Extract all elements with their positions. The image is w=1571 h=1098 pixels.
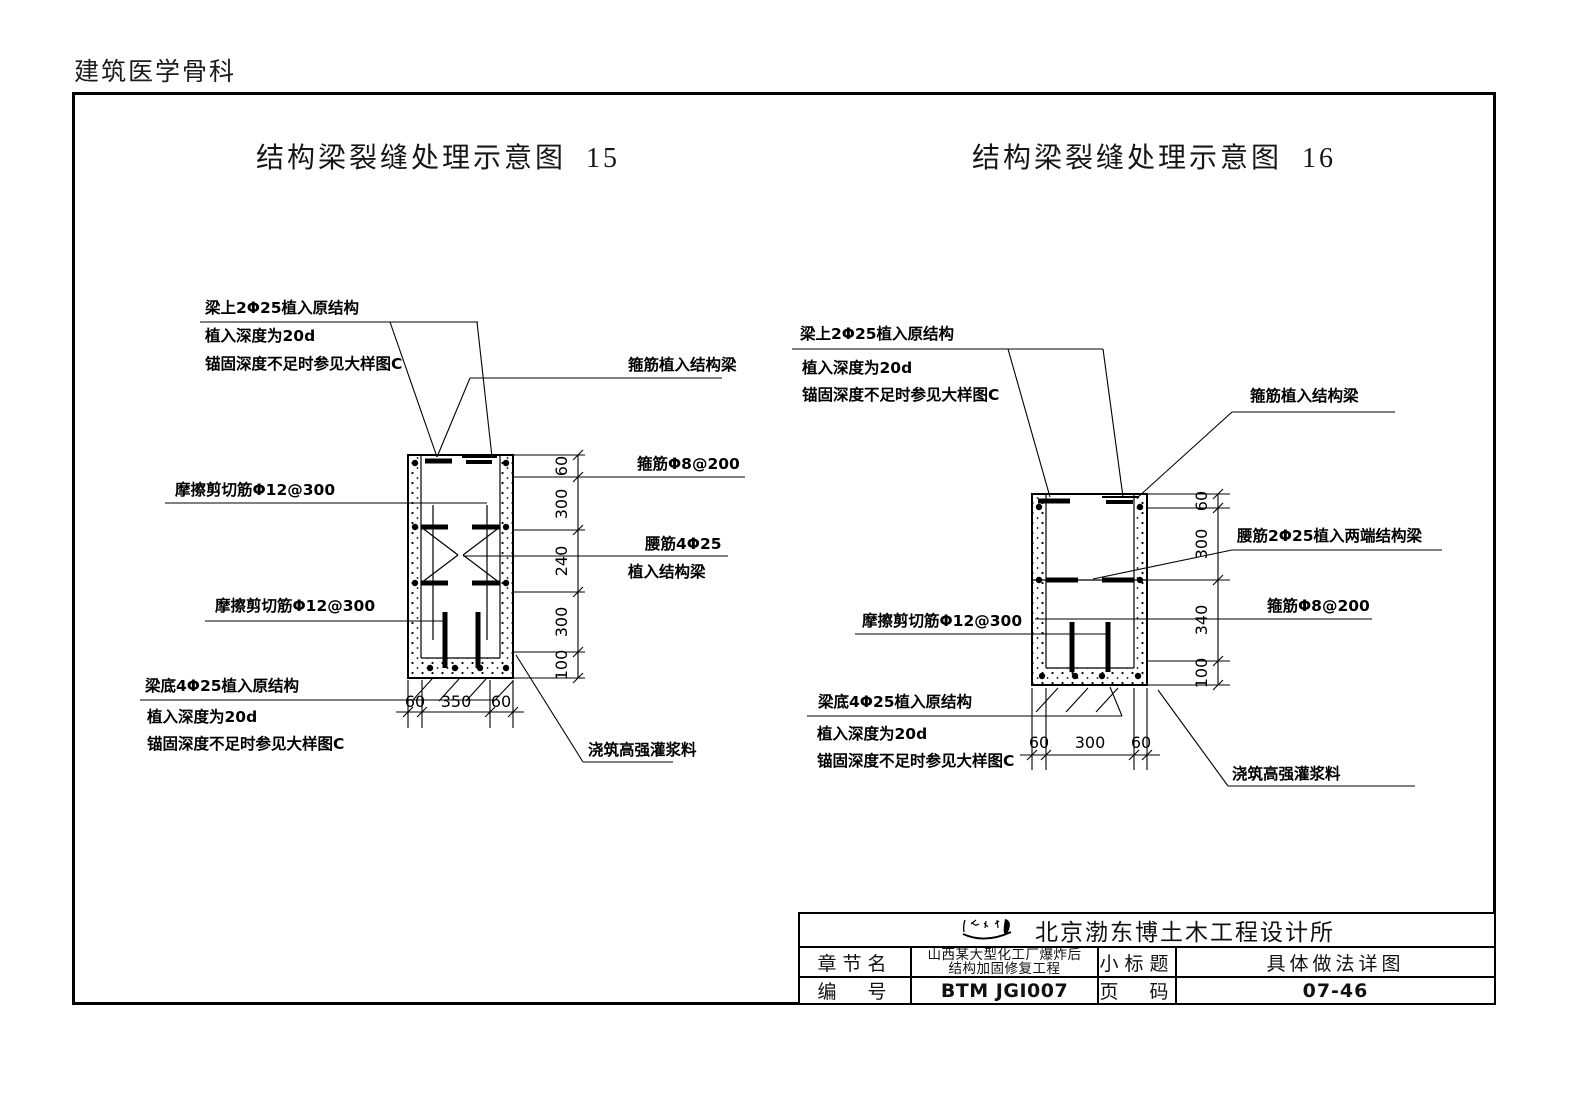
label-friction-16: 摩擦剪切筋Φ12@300 <box>862 611 1022 630</box>
beam-section-15 <box>408 455 513 678</box>
label-bottom-bar-15: 梁底4Φ25植入原结构 <box>144 676 299 695</box>
label-bottom-anchor-15: 锚固深度不足时参见大样图C <box>147 734 344 753</box>
label-bottom-anchor-16: 锚固深度不足时参见大样图C <box>817 751 1014 770</box>
project-name-line1: 山西某大型化工厂爆炸后 <box>928 948 1082 962</box>
label-top-anchor-16: 锚固深度不足时参见大样图C <box>802 385 999 404</box>
beam-section-16 <box>1032 494 1147 685</box>
label-friction-top-15: 摩擦剪切筋Φ12@300 <box>175 480 335 499</box>
page-label: 页 码 <box>1097 976 1175 1003</box>
label-top-bar-15: 梁上2Φ25植入原结构 <box>204 298 359 317</box>
title-block: 北京渤东博土木工程设计所 章节名 山西某大型化工厂爆炸后 结构加固修复工程 小标… <box>798 912 1496 1005</box>
label-grout-15: 浇筑高强灌浆料 <box>588 740 697 759</box>
dim-16-bottom-60a: 60 <box>1029 733 1049 752</box>
label-bottom-depth-15: 植入深度为20d <box>146 707 257 726</box>
dim-16-right-60: 60 <box>1192 491 1211 511</box>
label-top-depth-16: 植入深度为20d <box>801 358 912 377</box>
labels-16: 梁上2Φ25植入原结构 植入深度为20d 锚固深度不足时参见大样图C 箍筋植入结… <box>799 324 1423 783</box>
dim-16-right-340: 340 <box>1192 605 1211 636</box>
dim-16-right-100: 100 <box>1192 658 1211 689</box>
page-value: 07-46 <box>1175 976 1494 1003</box>
label-bottom-depth-16: 植入深度为20d <box>816 724 927 743</box>
leaders-16 <box>792 349 1442 786</box>
label-top-bar-16: 梁上2Φ25植入原结构 <box>799 324 954 343</box>
label-waist-bar-15: 腰筋4Φ25 <box>644 534 722 553</box>
label-waist-bar-16: 腰筋2Φ25植入两端结构梁 <box>1236 526 1423 545</box>
title-block-company-row: 北京渤东博土木工程设计所 <box>800 914 1494 946</box>
dim-15-right-300b: 300 <box>552 607 571 638</box>
chapter-label: 章节名 <box>800 946 910 976</box>
rebar-dots-16 <box>1036 504 1143 679</box>
beam-outline-15 <box>408 455 513 678</box>
dim-15-right-60a: 60 <box>552 456 571 476</box>
label-top-anchor-15: 锚固深度不足时参见大样图C <box>205 354 402 373</box>
company-name: 北京渤东博土木工程设计所 <box>1035 913 1335 947</box>
beam-outline-16 <box>1032 494 1147 685</box>
label-stirrup-implant-16: 箍筋植入结构梁 <box>1250 386 1359 405</box>
label-stirrup-implant-15: 箍筋植入结构梁 <box>628 355 737 374</box>
dim-15-bottom-350: 350 <box>441 692 472 711</box>
label-top-depth-15: 植入深度为20d <box>204 326 315 345</box>
wall-left-15 <box>408 455 421 658</box>
dim-15-right-100: 100 <box>552 650 571 681</box>
dim-15-bottom-60a: 60 <box>405 692 425 711</box>
subtitle-value: 具体做法详图 <box>1175 946 1494 976</box>
dim-16-bottom-300: 300 <box>1075 733 1106 752</box>
number-value: BTM JGI007 <box>910 976 1097 1003</box>
dim-15-right-240: 240 <box>552 546 571 577</box>
slab-bottom-16 <box>1032 668 1147 685</box>
title-block-grid: 章节名 山西某大型化工厂爆炸后 结构加固修复工程 小标题 具体做法详图 编 号 … <box>800 946 1494 1003</box>
label-stirrup-spec-15: 箍筋Φ8@200 <box>637 454 740 473</box>
subtitle-label: 小标题 <box>1097 946 1175 976</box>
company-logo <box>959 916 1021 944</box>
label-bottom-bar-16: 梁底4Φ25植入原结构 <box>817 692 972 711</box>
rebar-dots-15 <box>412 460 509 671</box>
dim-16-bottom-60b: 60 <box>1131 733 1151 752</box>
label-waist-bar2-15: 植入结构梁 <box>627 562 706 581</box>
number-label: 编 号 <box>800 976 910 1003</box>
dim-15-bottom-60b: 60 <box>491 692 511 711</box>
project-name: 山西某大型化工厂爆炸后 结构加固修复工程 <box>910 946 1097 976</box>
slab-bottom-15 <box>408 658 513 678</box>
project-name-line2: 结构加固修复工程 <box>949 962 1061 976</box>
label-friction-bottom-15: 摩擦剪切筋Φ12@300 <box>215 596 375 615</box>
dim-15-right-300a: 300 <box>552 489 571 520</box>
label-stirrup-spec-16: 箍筋Φ8@200 <box>1267 596 1370 615</box>
label-grout-16: 浇筑高强灌浆料 <box>1232 764 1341 783</box>
dim-16-right-300: 300 <box>1192 529 1211 560</box>
